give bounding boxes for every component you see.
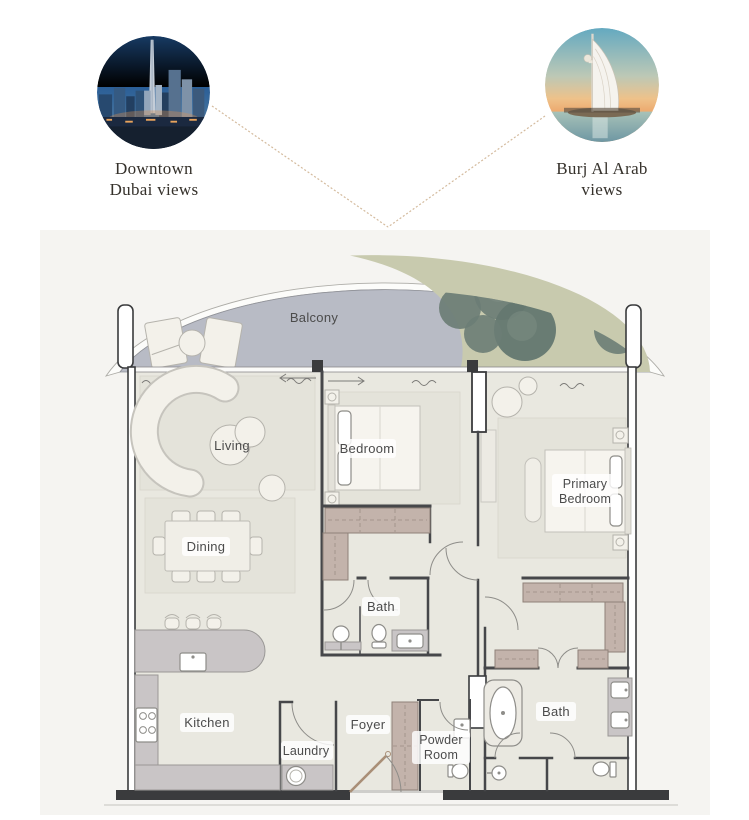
primary-bath-label: Bath — [542, 704, 570, 719]
caption-line: Downtown — [74, 158, 234, 179]
foreground-water — [97, 126, 210, 149]
headboard — [328, 405, 335, 491]
bath-label: Bath — [367, 599, 395, 614]
bar-stool — [165, 618, 179, 629]
bottom-outer-line — [104, 804, 678, 806]
toilet — [452, 764, 468, 779]
toilet — [372, 625, 386, 642]
burj-al-arab-photo — [545, 28, 659, 142]
primary-bedroom-label: Primary — [563, 477, 608, 491]
round-table — [519, 377, 537, 395]
right-balcony-post — [626, 305, 641, 368]
toilet — [593, 762, 609, 776]
caption-line: views — [522, 179, 682, 200]
window-post — [467, 360, 478, 372]
kitchen-counter-bottom — [135, 765, 280, 790]
island-strip — [564, 108, 640, 113]
left-balcony-post — [118, 305, 133, 368]
kitchen-label: Kitchen — [184, 715, 229, 730]
laundry-fixtures — [282, 765, 333, 790]
caption-line: Dubai views — [74, 179, 234, 200]
window-post — [312, 360, 323, 372]
pouf — [259, 475, 285, 501]
bar-stool — [207, 618, 221, 629]
bottom-wall-right — [443, 790, 669, 800]
balcony-side-table — [179, 330, 205, 356]
balcony-label: Balcony — [290, 310, 339, 325]
structural-column — [472, 372, 486, 432]
powder-room-label: Room — [424, 748, 458, 762]
downtown-dubai-photo — [97, 36, 210, 149]
bench — [525, 458, 541, 522]
bar-stool — [186, 618, 200, 629]
downtown-dubai-skyline-art — [97, 36, 210, 149]
connector-line-left — [212, 106, 388, 227]
dresser — [481, 430, 496, 502]
bath-ledge — [325, 642, 361, 650]
page: { "views": { "left": { "caption_line1": … — [0, 0, 749, 815]
floor-plan-image: Balcony — [40, 230, 710, 815]
living-label: Living — [214, 438, 250, 453]
washer — [287, 767, 306, 786]
bedroom-label: Bedroom — [340, 441, 395, 456]
laundry-label: Laundry — [283, 744, 330, 758]
foyer-label: Foyer — [351, 717, 386, 732]
pedestal-sink — [333, 626, 349, 642]
primary-bedroom-label: Bedroom — [559, 492, 611, 506]
dining-label: Dining — [187, 539, 226, 554]
bottom-wall-left — [116, 790, 350, 800]
caption-downtown-dubai: Downtown Dubai views — [74, 158, 234, 200]
caption-burj-al-arab: Burj Al Arab views — [522, 158, 682, 200]
toilet-tank — [610, 762, 616, 777]
round-table — [492, 387, 522, 417]
caption-line: Burj Al Arab — [522, 158, 682, 179]
powder-room-label: Powder — [419, 733, 463, 747]
headboard — [625, 448, 631, 534]
burj-al-arab-art — [545, 28, 659, 142]
